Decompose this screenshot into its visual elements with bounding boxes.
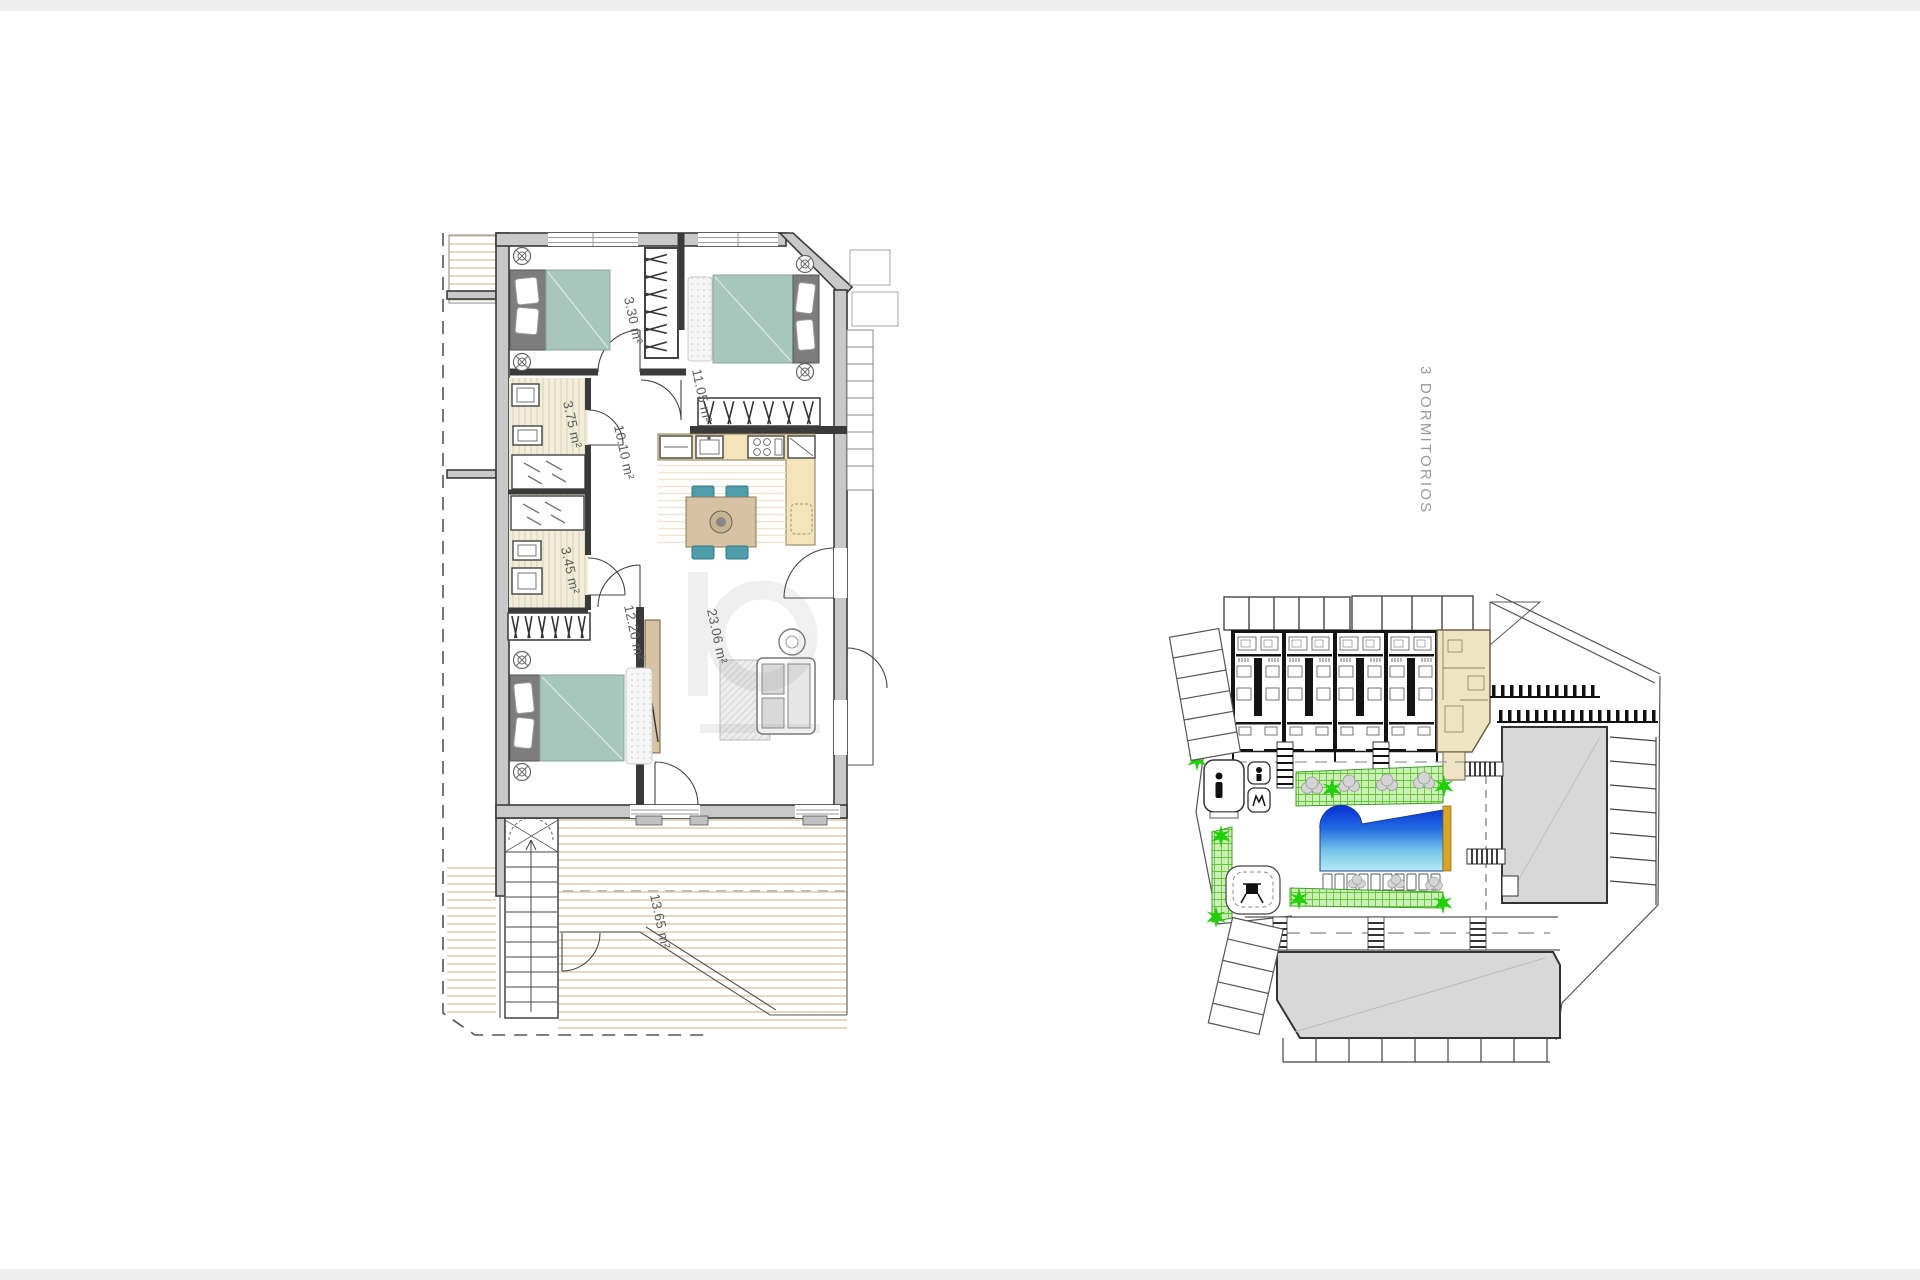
neighbor-building-east (1465, 727, 1656, 905)
parking-west-upper (1169, 629, 1240, 761)
dining-set (686, 486, 756, 559)
chair (692, 546, 714, 559)
sun-loungers (1323, 874, 1440, 890)
wardrobe-bedroom-3 (508, 613, 590, 640)
pillow (513, 682, 534, 714)
pillow (515, 307, 539, 335)
shower-tray (511, 496, 584, 530)
swimming-pool (1320, 805, 1443, 871)
street (1245, 917, 1560, 950)
ceiling-light-icon (514, 652, 531, 669)
room-area-label-bedroom-2: 11.05 m² (689, 368, 715, 425)
wall-stub (447, 470, 496, 478)
ceiling-light-icon (514, 764, 531, 781)
stove-icon (748, 436, 784, 458)
living-room (645, 620, 815, 753)
pillow (515, 277, 540, 305)
stairs (1465, 762, 1505, 864)
wardrobe-master (645, 248, 678, 358)
pillow (796, 319, 816, 350)
ceiling-light-icon (514, 354, 531, 371)
apartment-floor-plan: 3.30 m² 11.05 m² 3.75 m² 10.10 m² 3.45 m… (443, 233, 898, 1035)
pool-edge (1443, 806, 1451, 871)
room-area-label-hallway: 10.10 m² (611, 424, 637, 482)
street-terraces (1224, 596, 1473, 632)
staircase (496, 818, 558, 1018)
playground-icon (1226, 866, 1280, 914)
toilet-icon (512, 568, 542, 594)
shower-tray (512, 455, 585, 489)
floorplan-sheet: 3.30 m² 11.05 m² 3.75 m² 10.10 m² 3.45 m… (0, 0, 1920, 1280)
floorplan-page: 3.30 m² 11.05 m² 3.75 m² 10.10 m² 3.45 m… (0, 0, 1920, 1280)
neighbor-building-south (1277, 952, 1560, 1062)
parking-west-lower (1208, 918, 1283, 1035)
parking-east (1610, 737, 1656, 905)
apartment-block (1231, 630, 1439, 762)
highlighted-unit (1437, 630, 1490, 780)
sink-icon (696, 436, 723, 458)
bed-rug (626, 668, 652, 764)
ceiling-light-icon (797, 364, 814, 381)
ceiling-light-icon (514, 248, 531, 265)
pillow (513, 717, 534, 749)
wall-stub (447, 291, 496, 299)
room-area-label-wardrobe: 3.30 m² (621, 296, 646, 346)
fridge-icon (788, 436, 815, 458)
pool-garden (1188, 749, 1454, 928)
bedroom-1 (510, 248, 610, 371)
site-plan: 3 DORMITORIOS (1169, 366, 1660, 1062)
bed-rug (688, 277, 712, 361)
chair (726, 546, 748, 559)
parking-south (1283, 1038, 1550, 1062)
balcony-dividers (1490, 685, 1658, 722)
wardrobe-bedroom-2 (698, 398, 820, 426)
pillow (795, 282, 816, 314)
site-plan-title: 3 DORMITORIOS (1417, 366, 1434, 514)
hedge (1290, 888, 1443, 908)
ceiling-light-icon (797, 256, 814, 273)
toilets-icon (1204, 760, 1270, 818)
